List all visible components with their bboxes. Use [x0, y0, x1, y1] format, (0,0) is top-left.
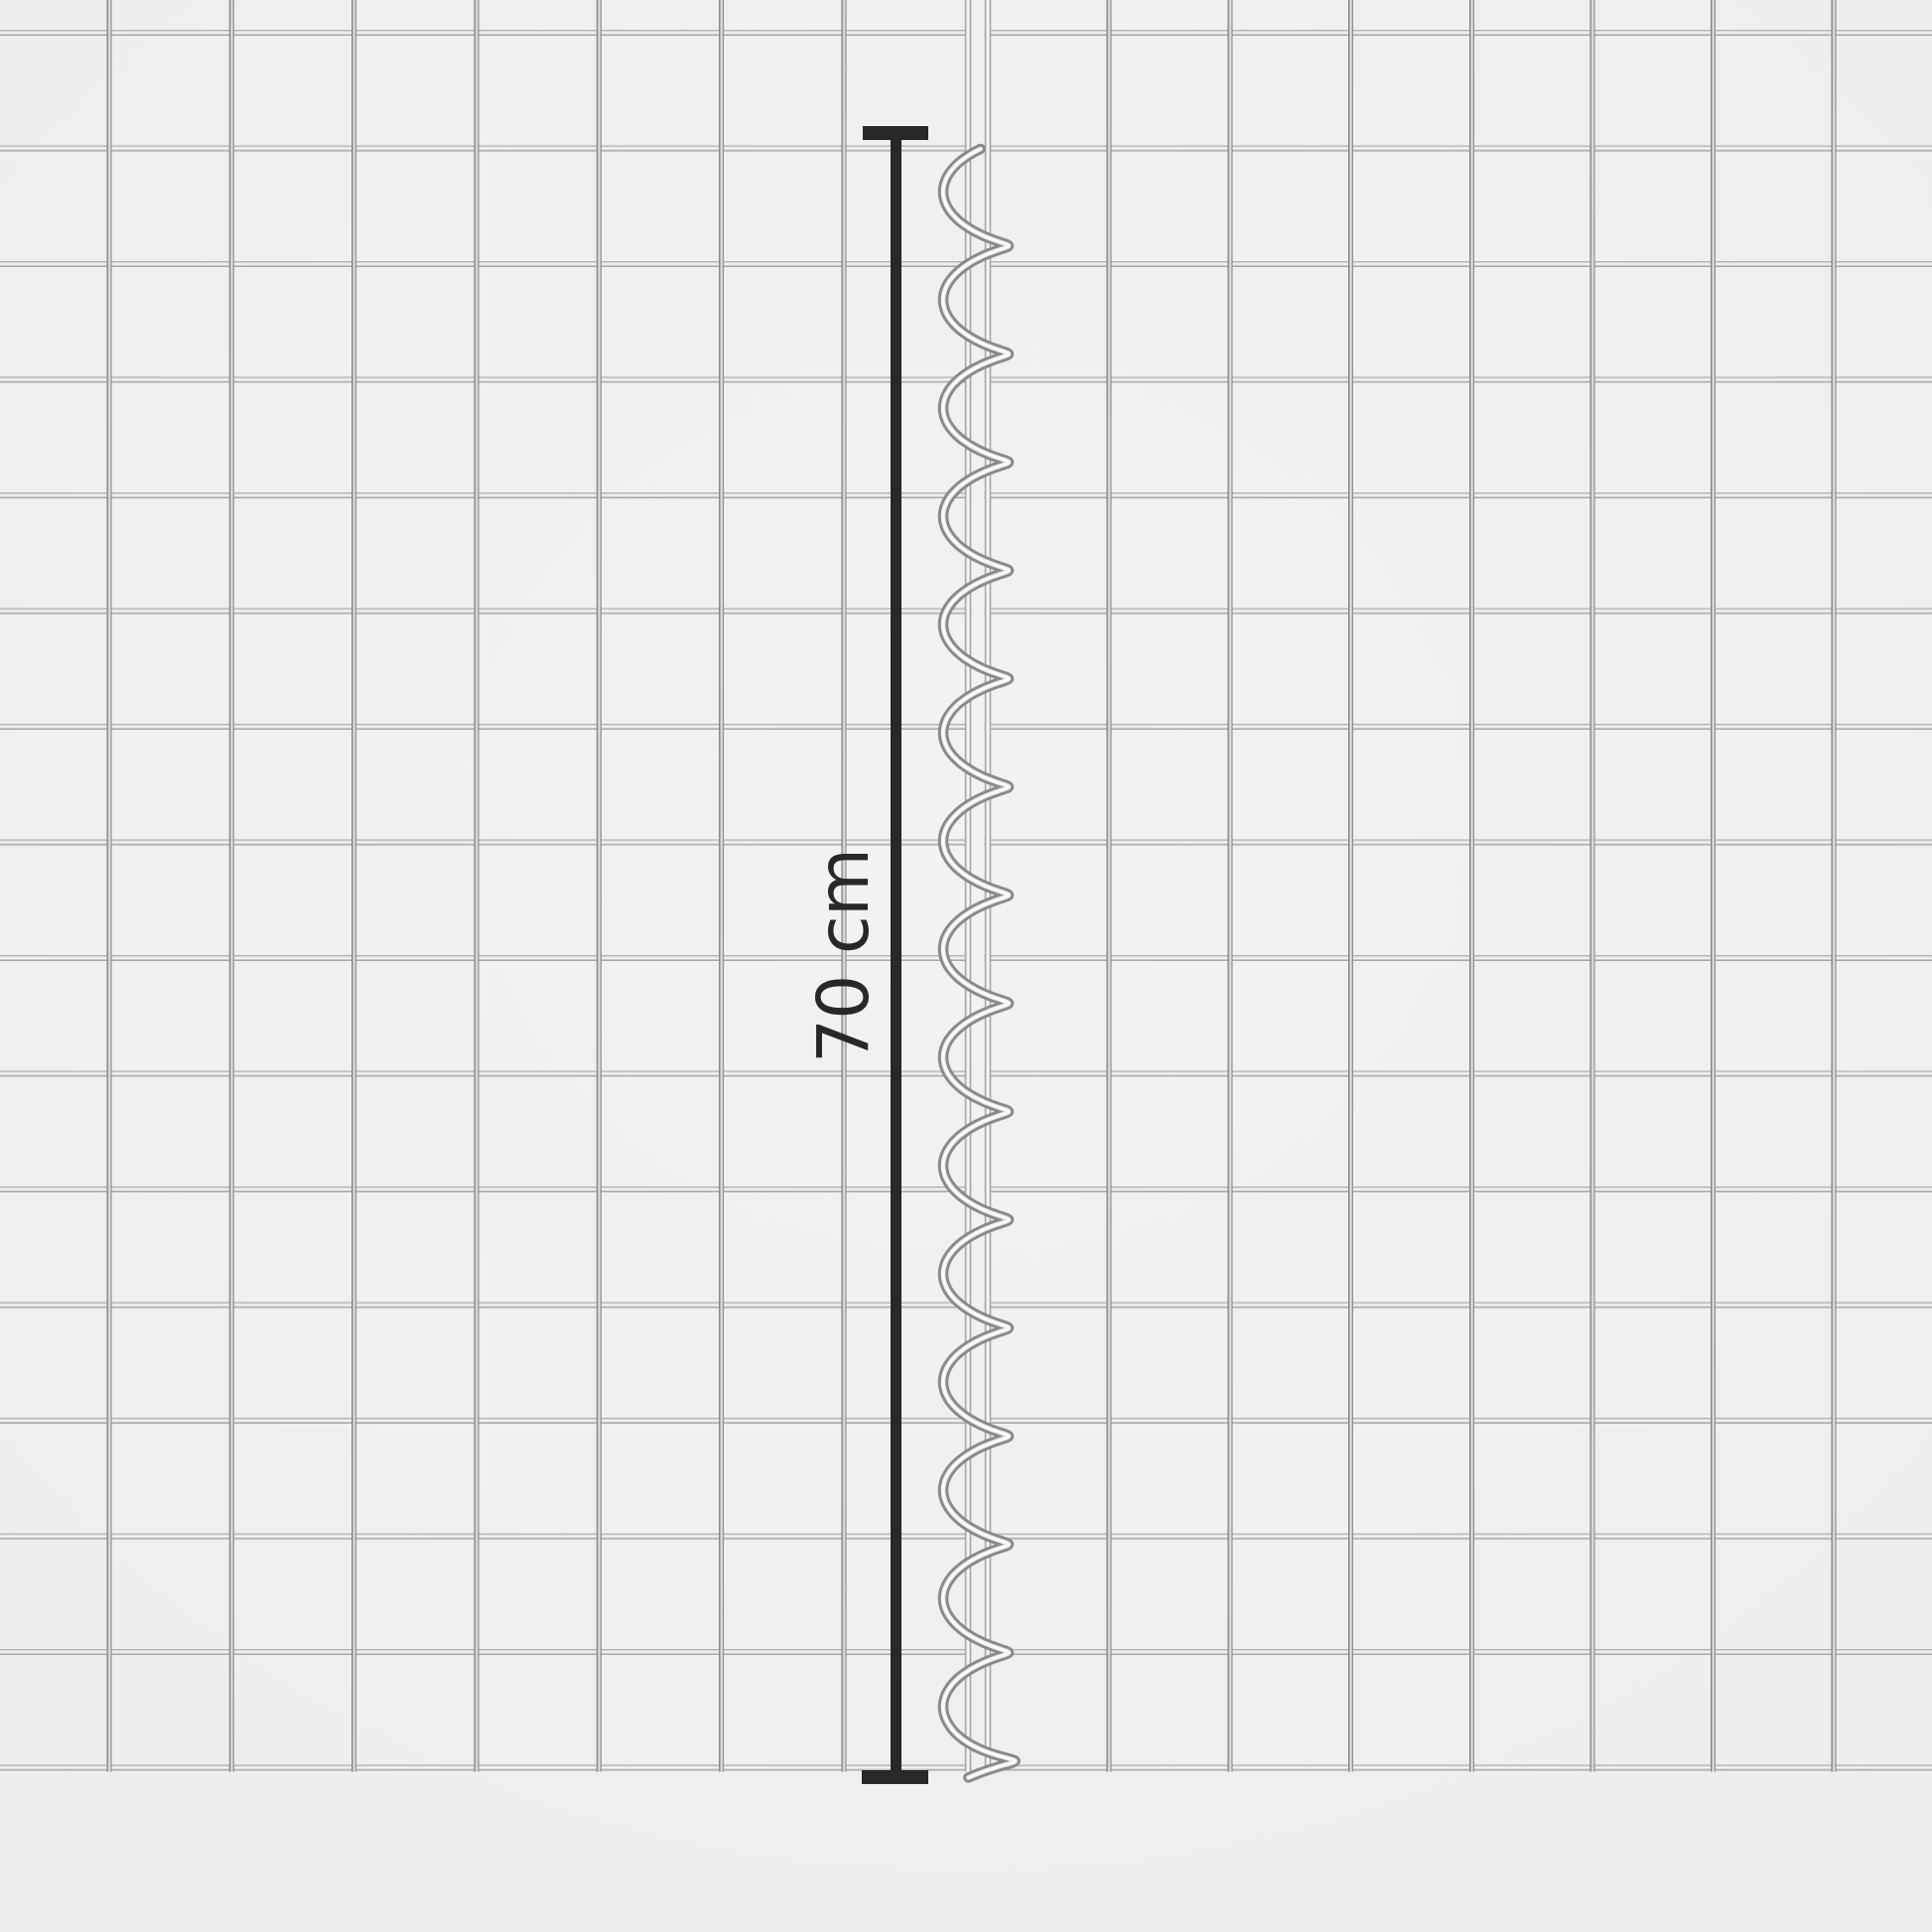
mesh-wire-vertical: [1348, 0, 1353, 1772]
mesh-wire-horizontal: [0, 609, 972, 615]
mesh-wire-vertical: [1469, 0, 1474, 1772]
mesh-wire-horizontal: [985, 1071, 1932, 1077]
mesh-wire-horizontal: [0, 1534, 972, 1540]
mesh-wire-horizontal: [985, 1649, 1932, 1655]
mesh-wire-horizontal: [0, 261, 972, 267]
mesh-wire-vertical: [229, 0, 234, 1772]
mesh-wire-vertical: [475, 0, 480, 1772]
mesh-wire-horizontal: [985, 492, 1932, 498]
spiral-wire-sheen: [943, 149, 1016, 1778]
mesh-wire-vertical: [1832, 0, 1837, 1772]
mesh-wire-horizontal: [985, 1303, 1932, 1309]
mesh-wire-vertical: [1711, 0, 1716, 1772]
mesh-wire-horizontal: [0, 1649, 972, 1655]
mesh-wire-vertical: [842, 0, 847, 1772]
mesh-wire-vertical: [597, 0, 602, 1772]
mesh-wire-vertical: [107, 0, 112, 1772]
mesh-wire-horizontal: [985, 955, 1932, 961]
mesh-wire-horizontal: [985, 1418, 1932, 1424]
mesh-wire-horizontal: [985, 724, 1932, 730]
mesh-wire-horizontal: [0, 955, 972, 961]
mesh-wire-horizontal: [985, 146, 1932, 152]
mesh-wire-horizontal: [985, 1186, 1932, 1192]
mesh-wire-horizontal: [985, 377, 1932, 383]
mesh-panel-right: [985, 0, 1932, 1772]
mesh-wire-vertical: [1590, 0, 1595, 1772]
mesh-panel-left: [0, 0, 972, 1772]
mesh-wire-vertical: [1107, 0, 1112, 1772]
mesh-wire-horizontal: [0, 377, 972, 383]
mesh-wire-horizontal: [0, 1071, 972, 1077]
mesh-wire-vertical: [719, 0, 724, 1772]
mesh-wire-horizontal: [0, 1303, 972, 1309]
mesh-wire-horizontal: [985, 1534, 1932, 1540]
mesh-wire-horizontal: [985, 30, 1932, 36]
mesh-wire-horizontal: [0, 146, 972, 152]
mesh-wire-horizontal: [0, 1765, 972, 1771]
mesh-wire-vertical: [1228, 0, 1233, 1772]
mesh-wire-horizontal: [0, 1186, 972, 1192]
mesh-wire-horizontal: [985, 261, 1932, 267]
mesh-wire-horizontal: [985, 609, 1932, 615]
mesh-wire-horizontal: [985, 840, 1932, 846]
spiral-connector: [943, 149, 1016, 1778]
mesh-wire-horizontal: [985, 1765, 1932, 1771]
mesh-wire-horizontal: [0, 30, 972, 36]
product-photo-mesh-with-spiral: 70 cm: [0, 0, 1932, 1932]
mesh-wire-horizontal: [0, 724, 972, 730]
mesh-panels-svg: [0, 0, 1932, 1932]
mesh-wire-horizontal: [0, 492, 972, 498]
mesh-wire-vertical: [351, 0, 356, 1772]
mesh-wire-horizontal: [0, 840, 972, 846]
mesh-wire-horizontal: [0, 1418, 972, 1424]
